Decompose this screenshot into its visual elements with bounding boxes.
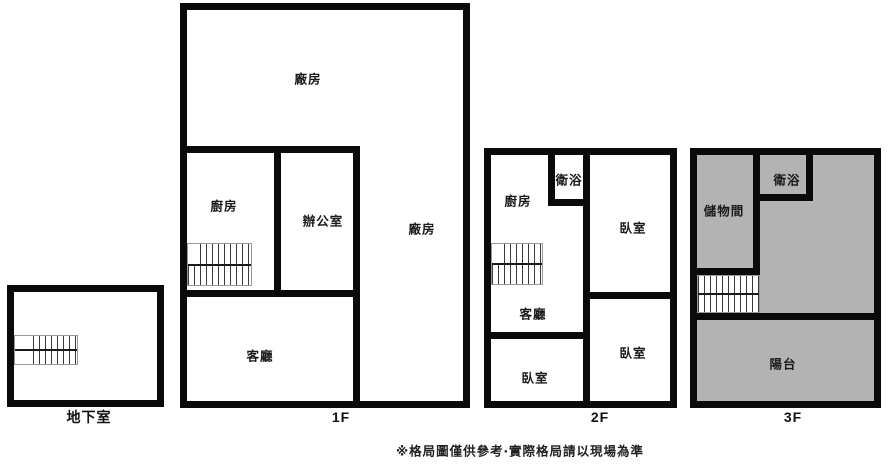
wall-3f-storage-bottom <box>697 268 760 275</box>
stair-treads <box>698 276 759 293</box>
room-label-factory-top: 廠房 <box>294 69 321 88</box>
stair-treads <box>188 264 251 286</box>
wall-1f-living-room-top <box>187 290 360 297</box>
wall-2f-living-bedroom <box>491 332 590 339</box>
floorplan-3f: 儲物間 衛浴 陽台 <box>690 148 881 408</box>
stair-treads <box>492 244 542 263</box>
floorplan-basement <box>7 285 164 407</box>
room-label-living-room: 客廳 <box>246 346 273 365</box>
room-label-bedroom-bottom-right: 臥室 <box>619 343 646 362</box>
room-label-bathroom: 衛浴 <box>773 170 800 189</box>
room-label-kitchen: 廚房 <box>504 191 531 210</box>
room-label-storage: 儲物間 <box>704 201 745 220</box>
floorplan-diagram: 地下室 廠房 廚房 辦公室 廠房 客廳 1F 廚房 衛浴 <box>0 0 889 466</box>
floorplan-1f: 廠房 廚房 辦公室 廠房 客廳 <box>180 3 470 408</box>
staircase-2f <box>491 243 543 285</box>
floor-label-3f: 3F <box>784 409 802 425</box>
room-label-office: 辦公室 <box>303 211 344 230</box>
floorplan-2f: 廚房 衛浴 臥室 客廳 臥室 臥室 <box>484 148 677 408</box>
wall-2f-bathroom-bottom <box>548 199 590 206</box>
floor-label-basement: 地下室 <box>67 407 112 427</box>
wall-1f-factory-column <box>353 146 360 401</box>
stair-treads <box>15 336 77 349</box>
wall-1f-kitchen-office <box>274 146 281 297</box>
staircase-3f <box>697 275 760 313</box>
stair-treads <box>15 349 77 364</box>
floor-label-1f: 1F <box>332 409 350 425</box>
floor-label-2f: 2F <box>591 409 609 425</box>
room-label-bedroom-top-right: 臥室 <box>619 218 646 237</box>
room-label-kitchen: 廚房 <box>210 196 237 215</box>
wall-3f-balcony-divider <box>697 313 874 320</box>
stair-treads <box>188 244 251 264</box>
room-label-balcony: 陽台 <box>769 354 796 373</box>
stair-treads <box>698 293 759 312</box>
room-label-bathroom: 衛浴 <box>555 170 582 189</box>
disclaimer-text: ※格局圖僅供參考‧實際格局請以現場為準 <box>396 441 644 460</box>
wall-2f-bedrooms-divider <box>583 292 670 299</box>
wall-3f-storage-right <box>753 155 760 275</box>
wall-3f-bathroom-bottom <box>753 194 813 201</box>
room-label-bedroom-bottom-left: 臥室 <box>521 368 548 387</box>
wall-3f-bathroom-right <box>806 155 813 201</box>
room-label-living-room: 客廳 <box>519 304 546 323</box>
staircase-1f <box>187 243 252 286</box>
wall-2f-main-divider <box>583 155 590 401</box>
stair-treads <box>492 263 542 284</box>
room-label-factory-right: 廠房 <box>408 219 435 238</box>
staircase-basement <box>14 335 78 365</box>
